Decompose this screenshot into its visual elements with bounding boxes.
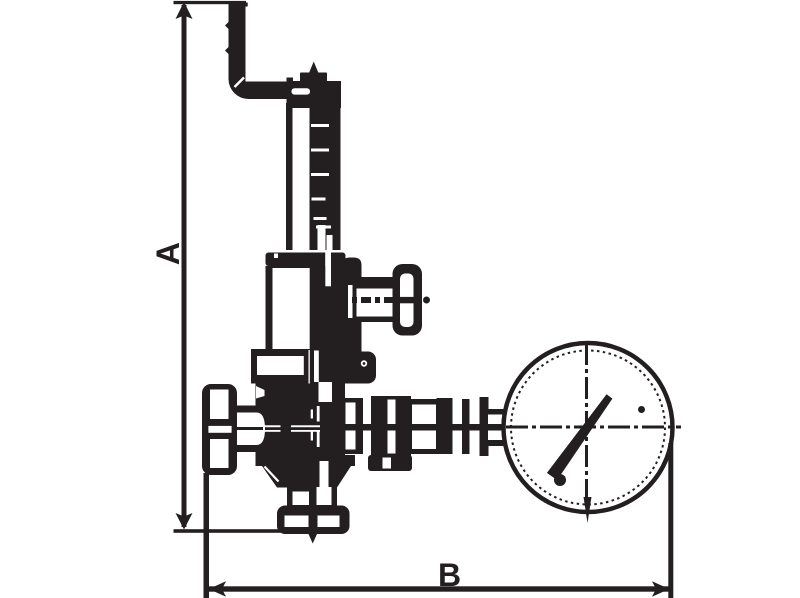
svg-text:B: B (438, 557, 461, 593)
svg-text:A: A (150, 242, 186, 265)
